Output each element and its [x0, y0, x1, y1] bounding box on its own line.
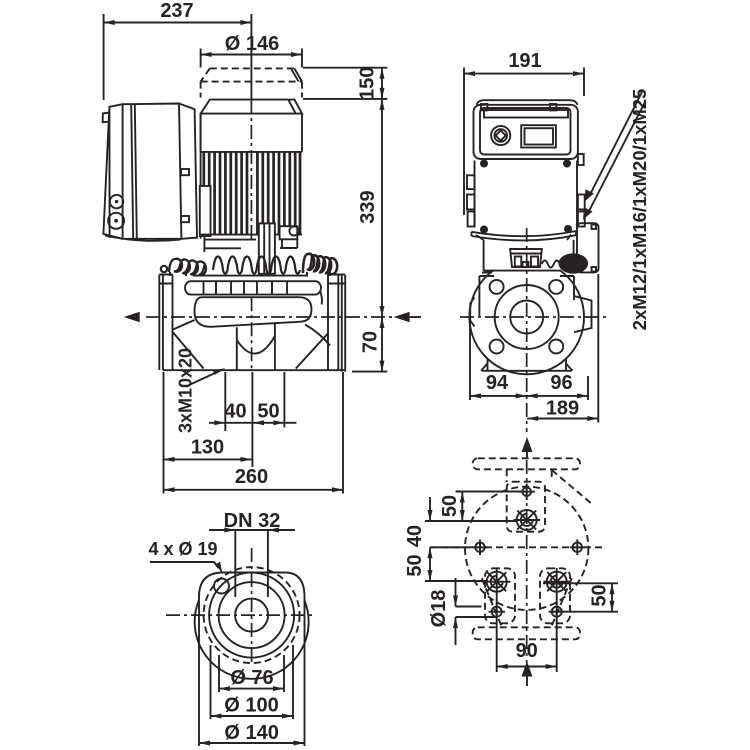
svg-text:237: 237 — [160, 0, 193, 22]
svg-text:DN 32: DN 32 — [224, 510, 281, 532]
svg-text:50: 50 — [404, 554, 426, 576]
svg-text:191: 191 — [508, 50, 541, 72]
svg-text:Ø 140: Ø 140 — [224, 722, 278, 744]
svg-text:150: 150 — [357, 67, 379, 100]
svg-text:260: 260 — [235, 466, 268, 488]
svg-text:Ø 100: Ø 100 — [224, 695, 278, 717]
svg-text:96: 96 — [550, 372, 572, 394]
svg-text:50: 50 — [439, 495, 461, 517]
svg-text:4 x Ø 19: 4 x Ø 19 — [148, 539, 217, 559]
svg-text:70: 70 — [360, 331, 382, 353]
svg-text:3xM10x20: 3xM10x20 — [176, 348, 196, 433]
svg-text:94: 94 — [486, 372, 509, 394]
svg-text:Ø 146: Ø 146 — [225, 33, 279, 55]
svg-text:339: 339 — [357, 190, 379, 223]
svg-text:40: 40 — [224, 401, 246, 423]
svg-text:40: 40 — [404, 525, 426, 547]
svg-text:50: 50 — [257, 401, 279, 423]
svg-text:2xM12/1xM16/1xM20/1xM25: 2xM12/1xM16/1xM20/1xM25 — [629, 89, 650, 331]
svg-text:Ø18: Ø18 — [428, 590, 450, 628]
svg-text:90: 90 — [516, 640, 538, 662]
svg-text:Ø 76: Ø 76 — [230, 667, 273, 689]
svg-text:130: 130 — [191, 437, 224, 459]
svg-text:189: 189 — [546, 398, 579, 420]
svg-text:50: 50 — [589, 584, 611, 606]
